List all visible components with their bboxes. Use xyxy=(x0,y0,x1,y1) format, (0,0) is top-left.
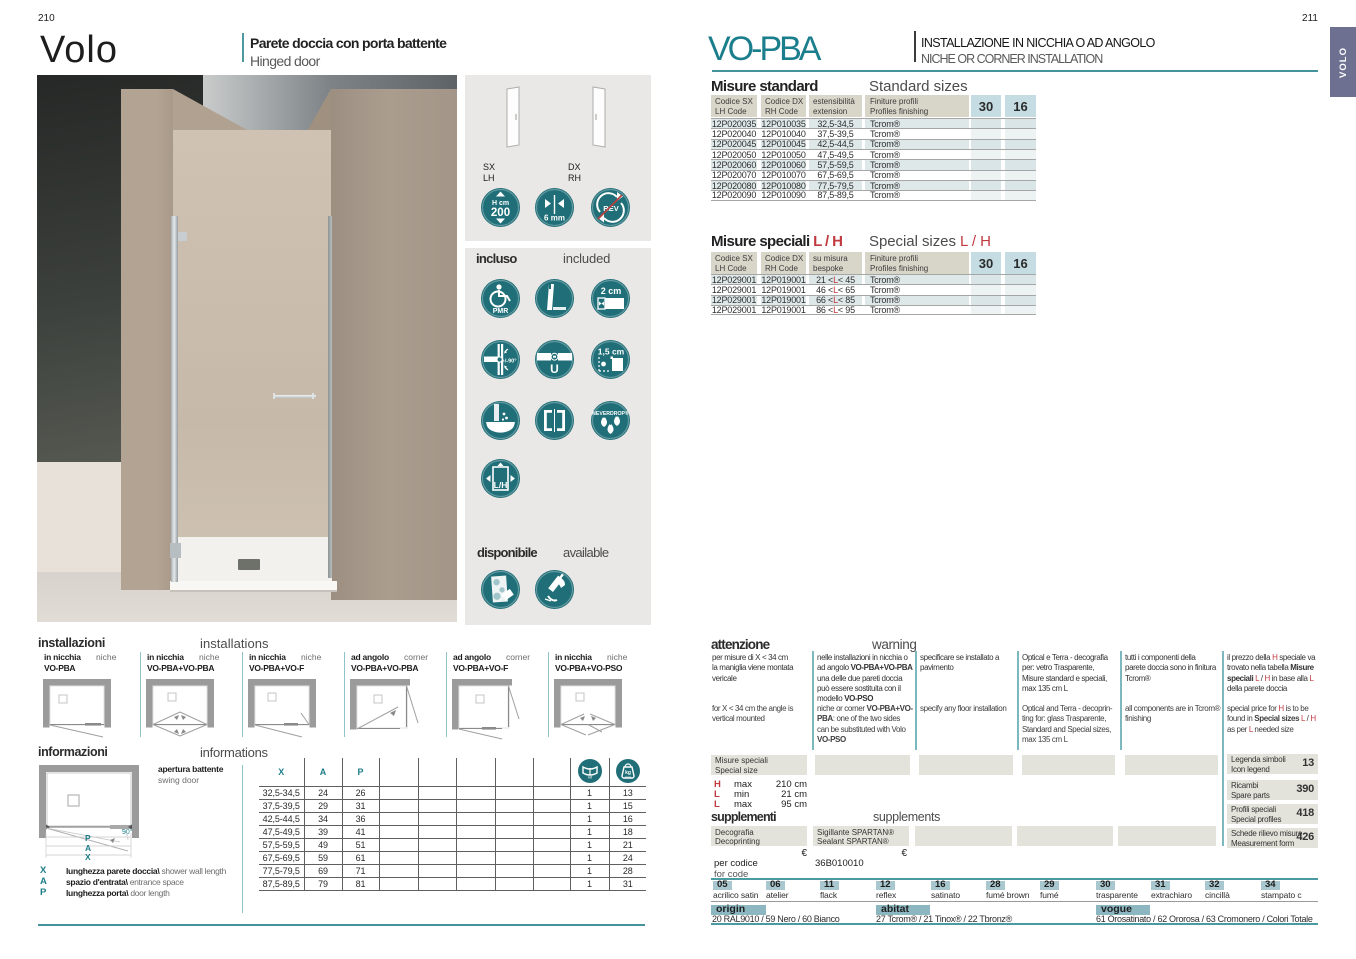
svg-text:2 cm: 2 cm xyxy=(601,286,622,296)
svg-text:1,5 cm: 1,5 cm xyxy=(598,347,625,357)
svg-text:L/H: L/H xyxy=(494,480,508,490)
svg-text:90°: 90° xyxy=(122,828,133,836)
svg-text:U: U xyxy=(550,362,559,376)
svg-text:max: max xyxy=(625,776,632,780)
svg-text:+/-90°: +/-90° xyxy=(502,359,517,365)
svg-text:NEVERDROP®: NEVERDROP® xyxy=(592,410,629,417)
svg-text:PMR: PMR xyxy=(493,308,509,315)
svg-text:6 mm: 6 mm xyxy=(544,214,565,223)
svg-text:200: 200 xyxy=(491,207,510,219)
svg-text:H cm: H cm xyxy=(492,200,509,207)
